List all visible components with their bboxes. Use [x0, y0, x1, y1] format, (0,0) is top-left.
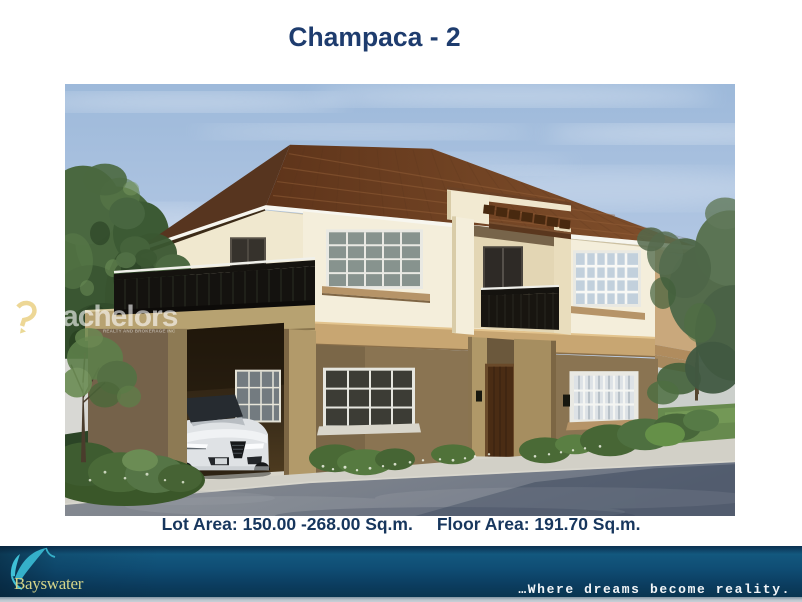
svg-text:REALTY AND BROKERAGE INC: REALTY AND BROKERAGE INC: [103, 328, 176, 333]
